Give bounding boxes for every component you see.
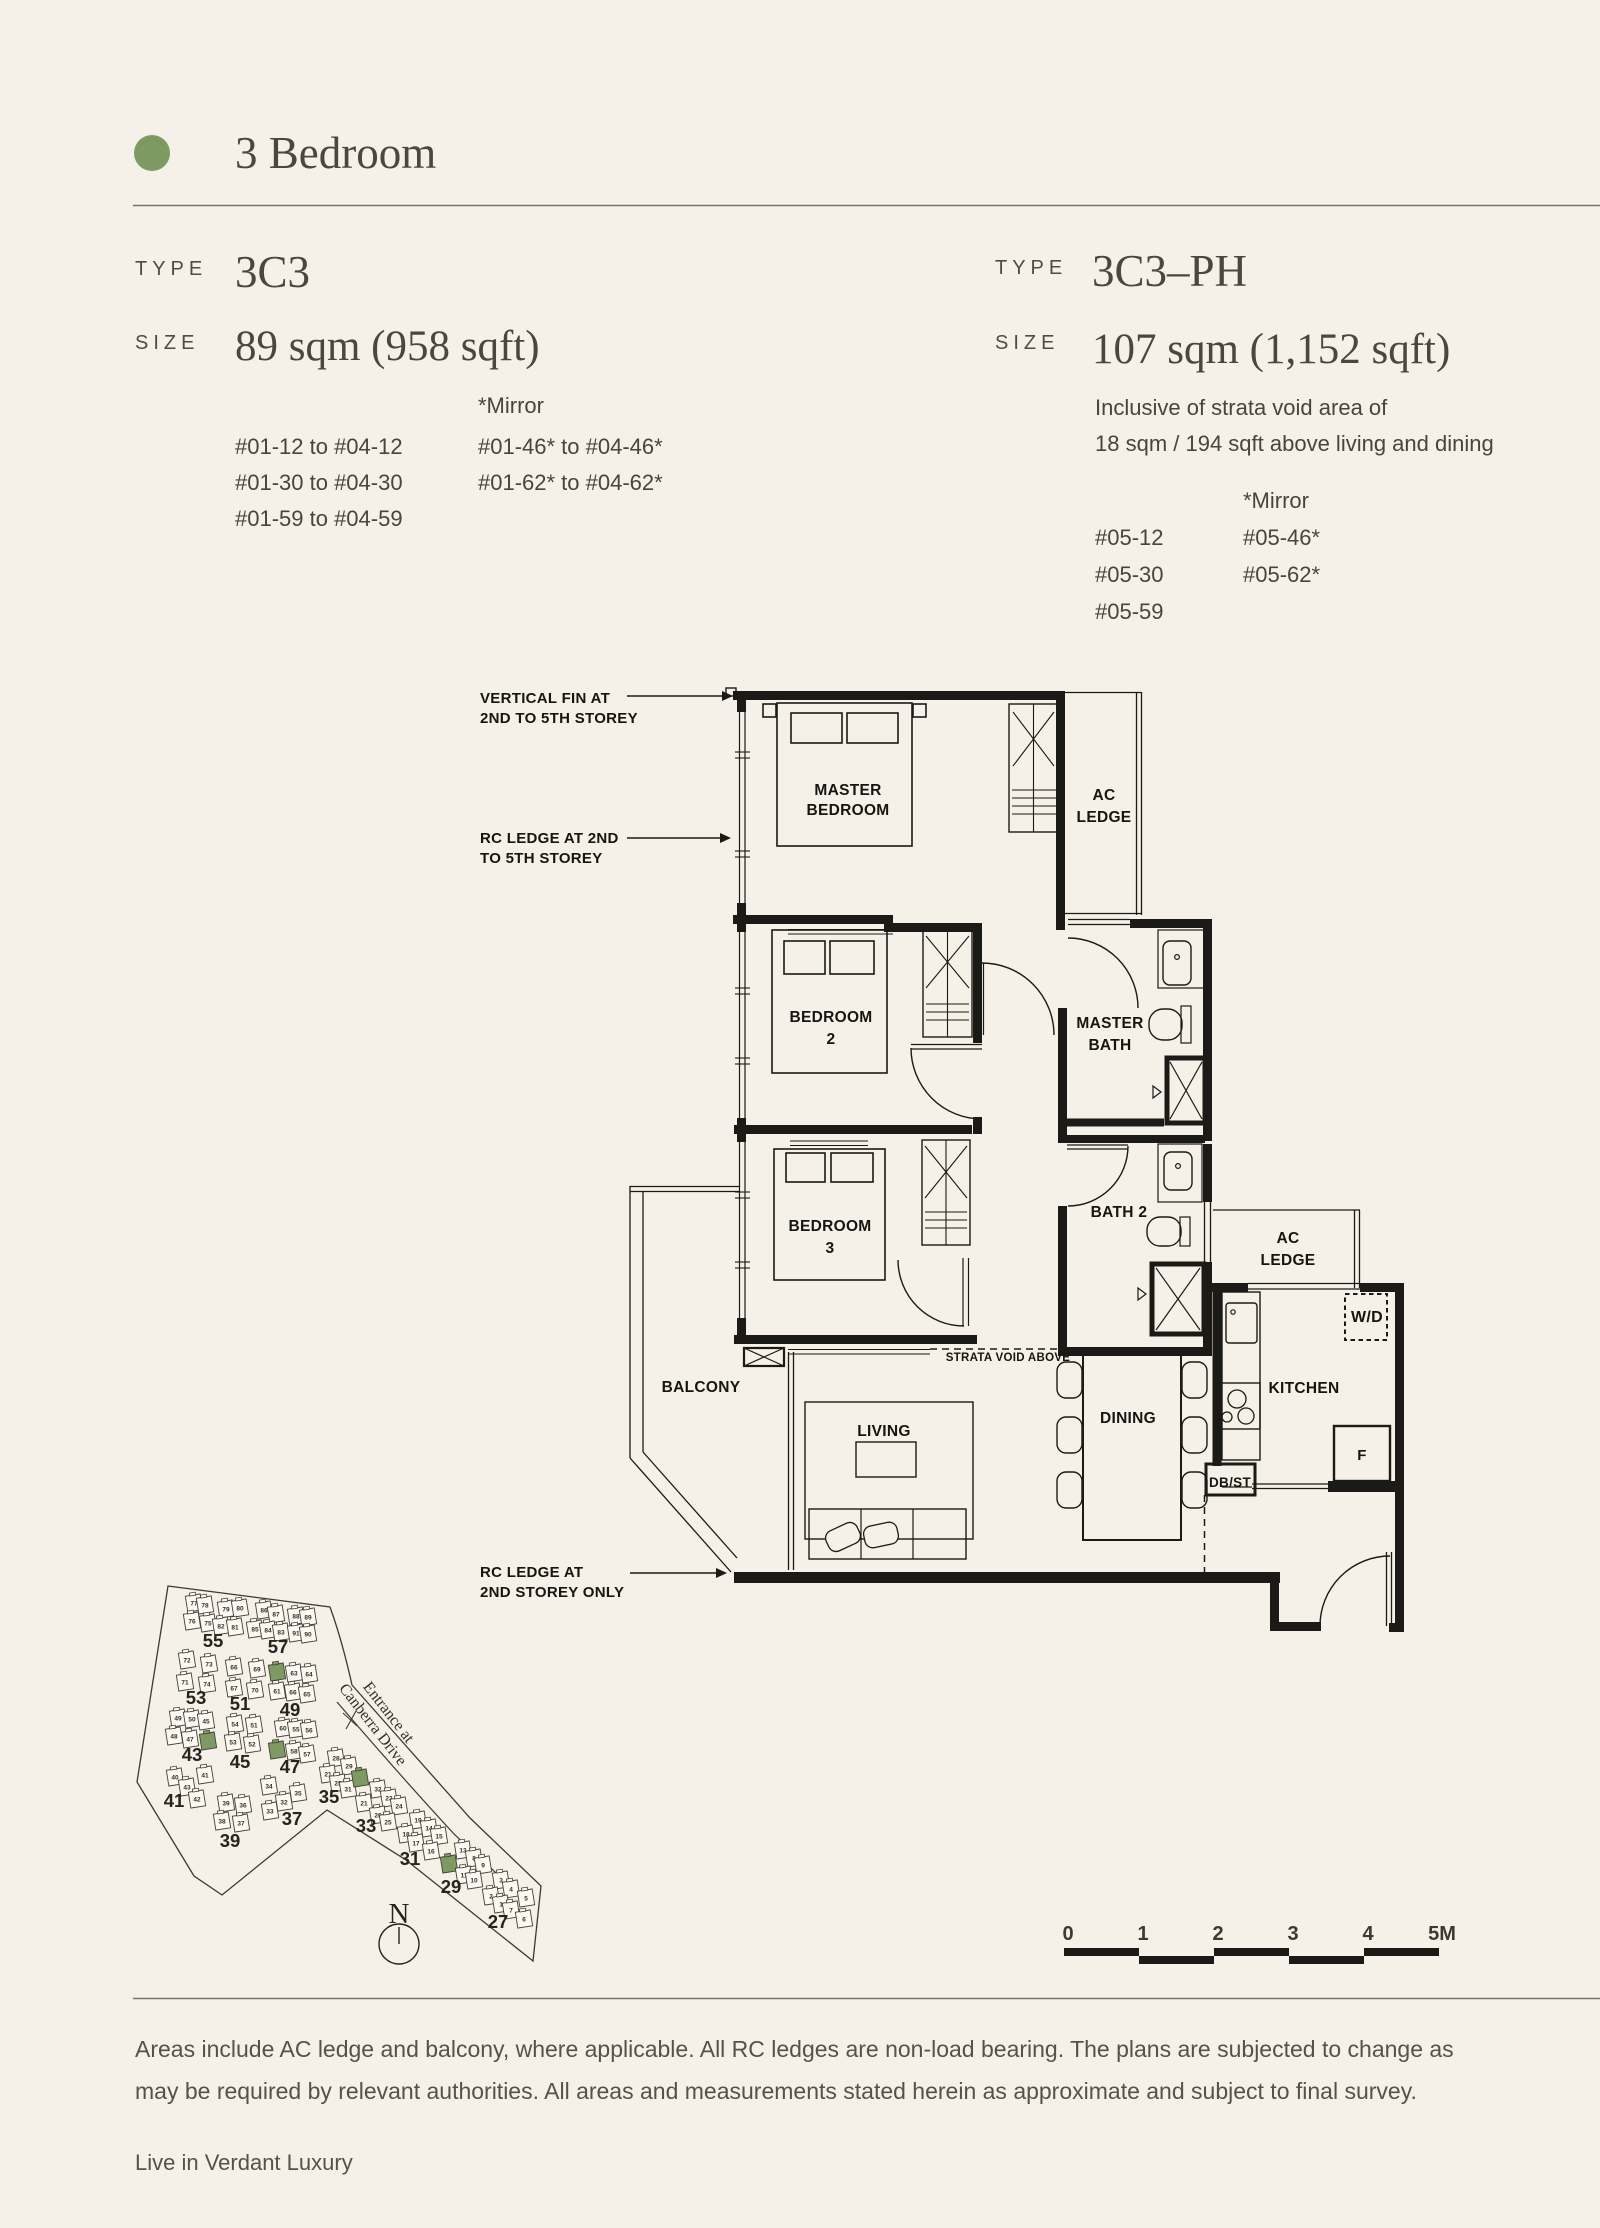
svg-text:BEDROOM: BEDROOM	[806, 802, 889, 819]
svg-text:39: 39	[222, 1801, 230, 1808]
svg-text:61: 61	[273, 1689, 281, 1696]
svg-text:35: 35	[294, 1791, 302, 1798]
svg-text:6: 6	[522, 1917, 526, 1924]
svg-text:MASTER: MASTER	[1076, 1015, 1143, 1032]
svg-text:65: 65	[303, 1692, 311, 1699]
svg-text:LIVING: LIVING	[857, 1423, 910, 1440]
svg-text:90: 90	[304, 1632, 312, 1639]
svg-text:86: 86	[260, 1608, 268, 1615]
svg-text:25: 25	[384, 1820, 392, 1827]
svg-text:91: 91	[292, 1631, 300, 1638]
svg-text:DINING: DINING	[1100, 1410, 1156, 1427]
svg-text:16: 16	[427, 1849, 435, 1856]
svg-text:9: 9	[481, 1863, 485, 1870]
svg-text:31: 31	[400, 1848, 421, 1869]
svg-text:37: 37	[237, 1821, 245, 1828]
svg-text:0: 0	[1062, 1923, 1073, 1945]
svg-text:BEDROOM: BEDROOM	[789, 1009, 872, 1026]
svg-text:57: 57	[303, 1752, 311, 1759]
svg-text:71: 71	[181, 1680, 189, 1687]
svg-text:10: 10	[470, 1878, 478, 1885]
svg-text:43: 43	[182, 1744, 203, 1765]
svg-text:37: 37	[282, 1808, 303, 1829]
svg-text:64: 64	[305, 1672, 313, 1679]
svg-text:2ND TO 5TH STOREY: 2ND TO 5TH STOREY	[480, 710, 638, 727]
svg-text:48: 48	[170, 1734, 178, 1741]
svg-text:40: 40	[171, 1775, 179, 1782]
svg-text:50: 50	[188, 1717, 196, 1724]
svg-text:27: 27	[488, 1911, 509, 1932]
svg-text:34: 34	[265, 1784, 273, 1791]
svg-text:35: 35	[319, 1786, 340, 1807]
svg-text:36: 36	[239, 1803, 247, 1810]
svg-text:2: 2	[827, 1031, 836, 1048]
svg-text:49: 49	[280, 1699, 301, 1720]
svg-text:84: 84	[264, 1628, 272, 1635]
svg-text:80: 80	[236, 1606, 244, 1613]
svg-text:45: 45	[202, 1719, 210, 1726]
svg-text:28: 28	[332, 1756, 340, 1763]
svg-text:33: 33	[356, 1815, 377, 1836]
svg-text:4: 4	[509, 1887, 513, 1894]
svg-text:54: 54	[231, 1722, 239, 1729]
svg-text:55: 55	[292, 1727, 300, 1734]
svg-text:89: 89	[304, 1615, 312, 1622]
svg-text:88: 88	[292, 1614, 300, 1621]
svg-text:BALCONY: BALCONY	[662, 1379, 741, 1396]
svg-text:BATH: BATH	[1088, 1037, 1131, 1054]
svg-text:5: 5	[524, 1896, 528, 1903]
svg-text:76: 76	[188, 1619, 196, 1626]
svg-text:39: 39	[220, 1830, 241, 1851]
svg-text:29: 29	[441, 1876, 462, 1897]
svg-text:42: 42	[193, 1797, 201, 1804]
svg-text:BEDROOM: BEDROOM	[788, 1218, 871, 1235]
svg-text:81: 81	[231, 1625, 239, 1632]
svg-text:73: 73	[205, 1662, 213, 1669]
svg-text:LEDGE: LEDGE	[1077, 809, 1132, 826]
svg-text:51: 51	[250, 1723, 258, 1730]
svg-text:43: 43	[183, 1785, 191, 1792]
svg-text:47: 47	[280, 1756, 301, 1777]
svg-text:RC LEDGE AT: RC LEDGE AT	[480, 1564, 583, 1581]
svg-text:7: 7	[509, 1908, 513, 1915]
svg-text:33: 33	[266, 1809, 274, 1816]
svg-text:W/D: W/D	[1351, 1309, 1383, 1326]
svg-text:AC: AC	[1277, 1230, 1300, 1247]
svg-text:53: 53	[186, 1687, 207, 1708]
svg-text:24: 24	[395, 1804, 403, 1811]
svg-text:67: 67	[230, 1686, 238, 1693]
svg-text:72: 72	[183, 1658, 191, 1665]
svg-text:15: 15	[435, 1834, 443, 1841]
svg-text:78: 78	[201, 1603, 209, 1610]
svg-text:41: 41	[201, 1773, 209, 1780]
svg-text:31: 31	[344, 1787, 352, 1794]
svg-text:F: F	[1357, 1447, 1366, 1464]
svg-text:57: 57	[268, 1636, 289, 1657]
svg-text:56: 56	[305, 1728, 313, 1735]
svg-text:49: 49	[174, 1716, 182, 1723]
svg-text:BATH 2: BATH 2	[1091, 1204, 1148, 1221]
svg-text:45: 45	[230, 1751, 251, 1772]
svg-text:87: 87	[272, 1612, 280, 1619]
svg-text:47: 47	[186, 1737, 194, 1744]
svg-text:3: 3	[1287, 1923, 1298, 1945]
svg-text:RC LEDGE AT 2ND: RC LEDGE AT 2ND	[480, 830, 619, 847]
svg-text:52: 52	[248, 1742, 256, 1749]
svg-text:75: 75	[204, 1621, 212, 1628]
svg-text:66: 66	[289, 1690, 297, 1697]
svg-text:66: 66	[230, 1665, 238, 1672]
svg-text:55: 55	[203, 1630, 224, 1651]
svg-text:21: 21	[360, 1801, 368, 1808]
svg-text:53: 53	[229, 1740, 237, 1747]
svg-text:29: 29	[345, 1764, 353, 1771]
svg-text:1: 1	[1137, 1923, 1148, 1945]
svg-text:MASTER: MASTER	[814, 782, 881, 799]
svg-text:3: 3	[826, 1240, 835, 1257]
svg-text:32: 32	[280, 1800, 288, 1807]
svg-text:STRATA VOID ABOVE: STRATA VOID ABOVE	[946, 1352, 1071, 1364]
svg-text:AC: AC	[1093, 787, 1116, 804]
svg-text:DB/ST: DB/ST	[1209, 1475, 1251, 1490]
svg-text:KITCHEN: KITCHEN	[1269, 1380, 1340, 1397]
svg-text:51: 51	[230, 1693, 251, 1714]
svg-text:85: 85	[251, 1627, 259, 1634]
svg-text:38: 38	[218, 1819, 226, 1826]
svg-text:69: 69	[253, 1667, 261, 1674]
svg-text:79: 79	[222, 1607, 230, 1614]
svg-text:58: 58	[290, 1749, 298, 1756]
svg-text:17: 17	[412, 1841, 420, 1848]
svg-text:TO 5TH STOREY: TO 5TH STOREY	[480, 850, 603, 867]
svg-text:2: 2	[1212, 1923, 1223, 1945]
svg-text:41: 41	[164, 1790, 185, 1811]
svg-text:63: 63	[290, 1671, 298, 1678]
svg-text:70: 70	[251, 1688, 259, 1695]
svg-text:5M: 5M	[1428, 1923, 1456, 1945]
svg-text:4: 4	[1362, 1923, 1374, 1945]
svg-text:VERTICAL FIN AT: VERTICAL FIN AT	[480, 690, 610, 707]
svg-text:2ND STOREY ONLY: 2ND STOREY ONLY	[480, 1584, 624, 1601]
svg-text:LEDGE: LEDGE	[1261, 1252, 1316, 1269]
svg-text:60: 60	[279, 1726, 287, 1733]
